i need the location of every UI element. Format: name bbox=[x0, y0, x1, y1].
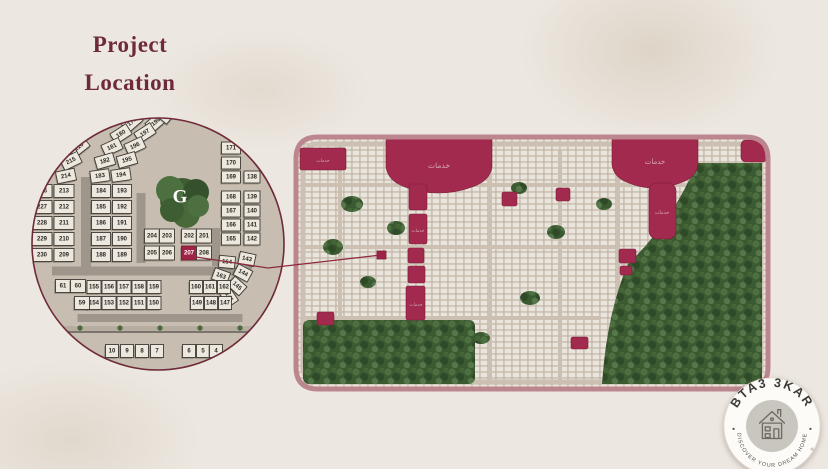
brand-logo: BTA3 3KAR DISCOVER YOUR DREAM HOME ® bbox=[722, 376, 822, 469]
svg-text:190: 190 bbox=[117, 237, 128, 243]
street-tree bbox=[197, 325, 202, 330]
svg-text:171: 171 bbox=[226, 146, 237, 152]
svg-text:206: 206 bbox=[162, 251, 173, 257]
svg-text:205: 205 bbox=[147, 251, 158, 257]
plot-169: 169 bbox=[220, 171, 240, 184]
plot-212: 212 bbox=[53, 201, 74, 215]
svg-text:193: 193 bbox=[117, 189, 128, 195]
plot-211: 211 bbox=[53, 217, 74, 231]
svg-text:207: 207 bbox=[184, 251, 195, 257]
svg-text:152: 152 bbox=[119, 301, 130, 307]
plot-229: 229 bbox=[31, 233, 52, 247]
plot-142: 142 bbox=[243, 233, 260, 246]
plot-186: 186 bbox=[90, 217, 110, 231]
svg-text:170: 170 bbox=[226, 161, 237, 167]
plot-167: 167 bbox=[220, 205, 240, 218]
svg-text:208: 208 bbox=[199, 251, 210, 257]
plot-139: 139 bbox=[243, 191, 260, 204]
svg-text:159: 159 bbox=[149, 285, 160, 291]
plot-61: 61 bbox=[54, 280, 70, 294]
svg-text:230: 230 bbox=[37, 253, 48, 259]
svg-text:138: 138 bbox=[247, 175, 258, 181]
svg-text:154: 154 bbox=[89, 301, 100, 307]
plot-168: 168 bbox=[220, 191, 240, 204]
svg-text:142: 142 bbox=[247, 237, 258, 243]
svg-text:140: 140 bbox=[247, 209, 258, 215]
park-patch bbox=[323, 239, 343, 255]
registered-mark: ® bbox=[810, 446, 814, 453]
service-label: خدمات bbox=[411, 229, 424, 234]
street-tree bbox=[117, 325, 122, 330]
park-patch bbox=[520, 291, 540, 305]
plot-227: 227 bbox=[31, 201, 52, 215]
slide: Project Location خدماتخدماتخدماتخدماتخدم… bbox=[0, 0, 828, 469]
service-label: خدمات bbox=[428, 161, 450, 170]
svg-text:151: 151 bbox=[134, 301, 145, 307]
street-tree bbox=[237, 325, 242, 330]
plot-5: 5 bbox=[195, 345, 209, 359]
plot-156: 156 bbox=[101, 281, 116, 295]
forest-southwest bbox=[303, 320, 475, 384]
service-label: خدمات bbox=[316, 159, 329, 164]
svg-text:209: 209 bbox=[59, 253, 70, 259]
plot-149: 149 bbox=[189, 297, 203, 311]
svg-text:167: 167 bbox=[226, 209, 237, 215]
svg-text:204: 204 bbox=[147, 234, 158, 240]
svg-text:160: 160 bbox=[191, 285, 202, 291]
plot-201: 201 bbox=[195, 229, 211, 244]
street-tree bbox=[157, 325, 162, 330]
svg-text:187: 187 bbox=[96, 237, 107, 243]
plot-8: 8 bbox=[134, 345, 148, 359]
svg-text:150: 150 bbox=[149, 301, 160, 307]
plot-59: 59 bbox=[73, 297, 89, 311]
park-patch bbox=[341, 196, 363, 212]
svg-text:10: 10 bbox=[109, 349, 116, 355]
master-plan-map: خدماتخدماتخدماتخدماتخدماتخدمات bbox=[296, 137, 768, 389]
plot-187: 187 bbox=[90, 233, 110, 247]
svg-text:139: 139 bbox=[247, 195, 258, 201]
plot-194: 194 bbox=[109, 168, 131, 184]
service-label: خدمات bbox=[409, 303, 422, 308]
logo-inner-circle bbox=[746, 400, 798, 452]
svg-text:60: 60 bbox=[75, 284, 82, 290]
svg-text:191: 191 bbox=[117, 221, 128, 227]
park-patch bbox=[596, 198, 612, 210]
plot-190: 190 bbox=[111, 233, 131, 247]
plot-153: 153 bbox=[101, 297, 116, 311]
plot-207: 207 bbox=[180, 246, 196, 261]
plot-159: 159 bbox=[146, 281, 161, 295]
plot-161: 161 bbox=[202, 281, 216, 295]
plot-160: 160 bbox=[188, 281, 202, 295]
svg-text:155: 155 bbox=[89, 285, 100, 291]
svg-text:213: 213 bbox=[59, 189, 70, 195]
svg-text:162: 162 bbox=[219, 285, 230, 291]
plot-204: 204 bbox=[143, 229, 159, 244]
svg-text:153: 153 bbox=[104, 301, 115, 307]
plot-188: 188 bbox=[90, 249, 110, 263]
svg-text:229: 229 bbox=[37, 237, 48, 243]
svg-text:158: 158 bbox=[134, 285, 145, 291]
park-label: G bbox=[173, 187, 188, 208]
service-label: خدمات bbox=[655, 210, 670, 216]
svg-text:157: 157 bbox=[119, 285, 130, 291]
svg-text:148: 148 bbox=[206, 301, 217, 307]
svg-text:228: 228 bbox=[37, 221, 48, 227]
site-maps: خدماتخدماتخدماتخدماتخدماتخدماتG226213184… bbox=[0, 0, 828, 469]
plot-203: 203 bbox=[158, 229, 174, 244]
tagline-dot bbox=[809, 428, 811, 430]
plot-151: 151 bbox=[131, 297, 146, 311]
svg-text:211: 211 bbox=[59, 221, 69, 227]
svg-text:199: 199 bbox=[163, 107, 174, 119]
plot-183: 183 bbox=[88, 169, 110, 185]
plot-166: 166 bbox=[220, 219, 240, 232]
svg-text:156: 156 bbox=[104, 285, 115, 291]
street-tree bbox=[77, 325, 82, 330]
plot-189: 189 bbox=[111, 249, 131, 263]
plot-147: 147 bbox=[217, 297, 231, 311]
svg-text:202: 202 bbox=[184, 234, 195, 240]
svg-text:210: 210 bbox=[59, 237, 70, 243]
plot-7: 7 bbox=[149, 345, 163, 359]
svg-text:161: 161 bbox=[205, 285, 216, 291]
plot-60: 60 bbox=[69, 280, 85, 294]
plot-192: 192 bbox=[111, 201, 131, 215]
plot-148: 148 bbox=[203, 297, 217, 311]
detail-map: G226213184193227212185192228211186191229… bbox=[21, 82, 286, 374]
svg-text:165: 165 bbox=[226, 237, 237, 243]
svg-text:185: 185 bbox=[96, 205, 107, 211]
plot-155: 155 bbox=[86, 281, 101, 295]
svg-text:168: 168 bbox=[226, 195, 237, 201]
svg-text:184: 184 bbox=[96, 189, 107, 195]
plot-171: 171 bbox=[220, 142, 240, 155]
svg-text:203: 203 bbox=[162, 234, 173, 240]
svg-text:186: 186 bbox=[96, 221, 107, 227]
plot-206: 206 bbox=[158, 246, 174, 261]
svg-text:59: 59 bbox=[79, 301, 86, 307]
plot-209: 209 bbox=[53, 249, 74, 263]
plot-140: 140 bbox=[243, 205, 260, 218]
plot-10: 10 bbox=[104, 345, 118, 359]
plot-150: 150 bbox=[146, 297, 161, 311]
plot-9: 9 bbox=[119, 345, 133, 359]
svg-text:212: 212 bbox=[59, 205, 70, 211]
svg-text:61: 61 bbox=[60, 284, 67, 290]
park-patch bbox=[387, 221, 405, 235]
plot-158: 158 bbox=[131, 281, 146, 295]
svg-text:169: 169 bbox=[226, 175, 237, 181]
plot-152: 152 bbox=[116, 297, 131, 311]
plot-185: 185 bbox=[90, 201, 110, 215]
svg-text:141: 141 bbox=[247, 223, 258, 229]
plot-141: 141 bbox=[243, 219, 260, 232]
svg-text:147: 147 bbox=[220, 301, 231, 307]
svg-text:189: 189 bbox=[117, 253, 128, 259]
plot-138: 138 bbox=[243, 171, 260, 184]
svg-text:149: 149 bbox=[192, 301, 203, 307]
park-patch bbox=[547, 225, 565, 239]
plot-162: 162 bbox=[216, 281, 230, 295]
tagline-dot bbox=[732, 428, 734, 430]
plot-191: 191 bbox=[111, 217, 131, 231]
park-patch bbox=[360, 276, 376, 288]
svg-text:166: 166 bbox=[226, 223, 237, 229]
plot-170: 170 bbox=[220, 157, 240, 170]
service-label: خدمات bbox=[645, 158, 665, 166]
plot-213: 213 bbox=[53, 185, 74, 199]
plot-202: 202 bbox=[180, 229, 196, 244]
plot-210: 210 bbox=[53, 233, 74, 247]
plot-205: 205 bbox=[143, 246, 159, 261]
svg-text:201: 201 bbox=[199, 234, 210, 240]
plot-157: 157 bbox=[116, 281, 131, 295]
plot-193: 193 bbox=[111, 185, 131, 199]
plot-184: 184 bbox=[90, 185, 110, 199]
svg-text:188: 188 bbox=[96, 253, 107, 259]
plot-165: 165 bbox=[220, 233, 240, 246]
plot-6: 6 bbox=[181, 345, 195, 359]
svg-text:192: 192 bbox=[117, 205, 128, 211]
